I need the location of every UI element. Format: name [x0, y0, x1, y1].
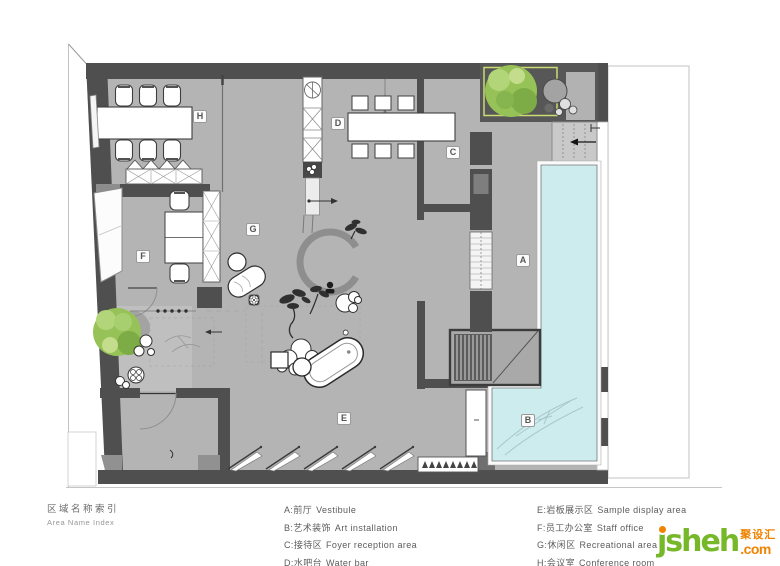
room-marker-reception: C: [446, 146, 460, 159]
display-cabinet: [466, 390, 486, 456]
room-marker-recreation: G: [246, 223, 260, 236]
room-marker-staff-office: F: [136, 250, 150, 263]
floor-plan-page: A B C D E F G H 区域名称索引 Area Name Index A…: [0, 0, 780, 566]
room-marker-sample-display: E: [337, 412, 351, 425]
display-pedestal: [271, 352, 288, 368]
room-marker-art: B: [521, 414, 535, 427]
entry-planter: [480, 63, 598, 122]
round-stool: [293, 358, 311, 376]
entry-steps: [552, 122, 600, 162]
equipment-room: [450, 330, 540, 385]
side-table: [228, 253, 246, 271]
flower-stool: [249, 295, 259, 305]
bar-table: [348, 113, 455, 141]
vestibule-partition: [470, 132, 492, 332]
person-figure: [327, 282, 333, 288]
sample-tray: [418, 457, 478, 472]
floor-plan-drawing: [0, 0, 780, 566]
room-marker-water-bar: D: [331, 117, 345, 130]
room-marker-conference: H: [193, 110, 207, 123]
conference-table: [97, 107, 192, 139]
room-marker-vestibule: A: [516, 254, 530, 267]
